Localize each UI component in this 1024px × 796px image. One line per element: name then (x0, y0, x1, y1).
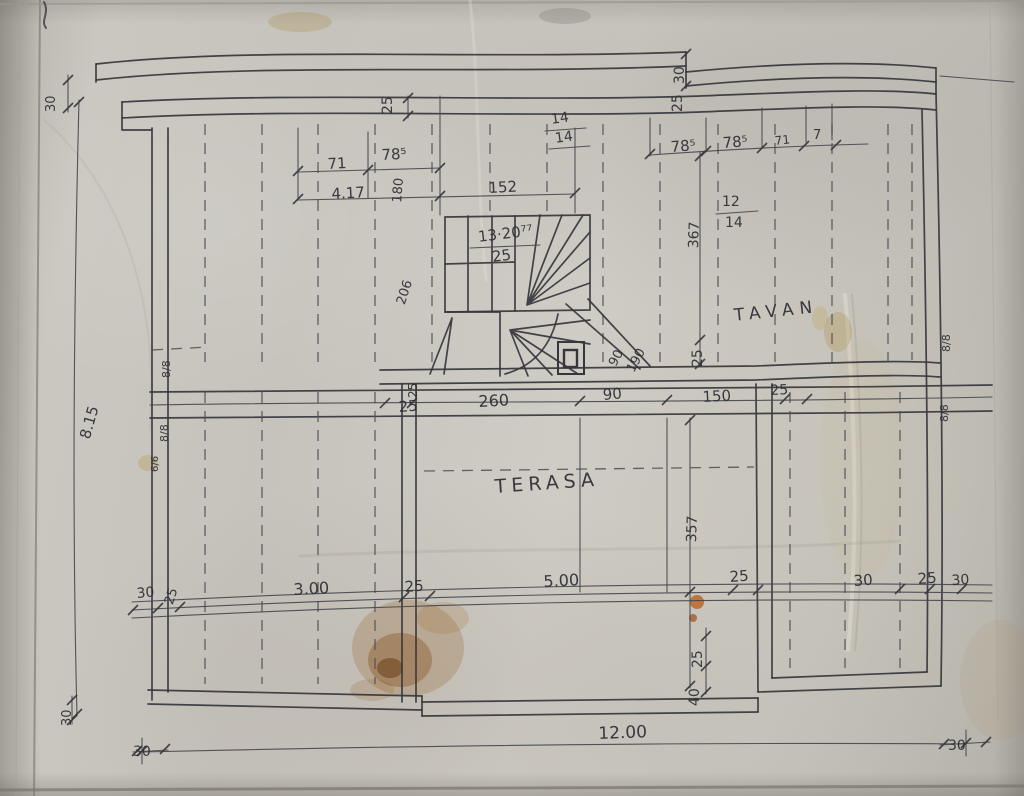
timber-size-left-3: 6/6 (150, 456, 161, 472)
dim-rafter-12: 12 (722, 194, 740, 210)
dim-785-left: 78⁵ (381, 145, 407, 164)
dim-bot-25-3: 25 (729, 567, 749, 586)
timber-size-left-1: 8/8 (160, 360, 173, 378)
dim-357: 357 (684, 515, 701, 542)
stair-winder-treads-upper (527, 215, 590, 305)
dimension-tick (160, 744, 170, 754)
dim-7: 7 (813, 128, 821, 143)
dim-wall-25-top: 25 (380, 96, 396, 114)
dimension-tick (728, 585, 738, 595)
dim-rafter-14-bot: 14 (554, 129, 574, 147)
dim-band-150: 150 (702, 387, 732, 406)
dim-bot-30-3: 30 (951, 572, 970, 589)
dimension-tick (575, 396, 585, 406)
dim-417: 4.17 (331, 183, 365, 203)
dim-chimney-25: 25 (690, 349, 706, 367)
blueprint-paper: 30 8.15 25 30 25 14 14 71 78⁵ 180 4.17 1… (0, 0, 1024, 796)
dim-71-right: 71 (774, 132, 791, 148)
dim-eave-25: 25 (670, 94, 686, 112)
dim-eave-30: 30 (672, 66, 688, 84)
dimension-tick (802, 394, 812, 404)
timber-size-left-2: 8/8 (158, 424, 171, 442)
dim-bot-500: 5.00 (543, 570, 580, 591)
dim-band-90: 90 (602, 384, 623, 404)
dim-overall-1200: 12.00 (598, 722, 647, 744)
dim-rafter-14b: 14 (725, 215, 743, 231)
dim-bot-30-1: 30 (136, 584, 155, 601)
dimension-tick (662, 395, 672, 405)
dim-corner-30-h: 30 (133, 744, 151, 760)
dim-corner-30-v: 30 (60, 709, 75, 726)
dim-367: 367 (686, 221, 703, 248)
dim-785-mid1: 78⁵ (670, 136, 696, 156)
dim-v40: 40 (687, 688, 703, 706)
dim-rafter-14-top: 14 (550, 110, 570, 128)
dim-top-left-30: 30 (44, 95, 59, 112)
dim-band-25-left: 25 (398, 397, 418, 416)
dim-71-left: 71 (327, 154, 347, 173)
dimension-tick (425, 591, 435, 601)
dim-bot-25-4: 25 (917, 569, 937, 588)
timber-size-right-1: 8/8 (940, 334, 953, 352)
dim-corner-30-r: 30 (948, 738, 966, 754)
dim-bot-300: 3.00 (293, 578, 330, 599)
dim-band-25-rot: 25 (406, 383, 420, 398)
dim-180: 180 (390, 177, 407, 203)
dim-bot-25-2: 25 (404, 577, 424, 596)
floor-plan-svg (0, 0, 1024, 796)
roof-overhang-lines (96, 52, 1014, 94)
timber-size-right-2: 8/8 (938, 404, 951, 422)
dim-v25: 25 (690, 650, 706, 668)
stair-tread: 25 (491, 246, 512, 266)
dim-785-mid2: 78⁵ (722, 132, 748, 152)
dim-band-260: 260 (478, 390, 509, 411)
dim-152: 152 (488, 178, 518, 197)
dim-bot-30-2: 30 (853, 571, 873, 590)
dim-band-25-right: 25 (770, 382, 789, 399)
